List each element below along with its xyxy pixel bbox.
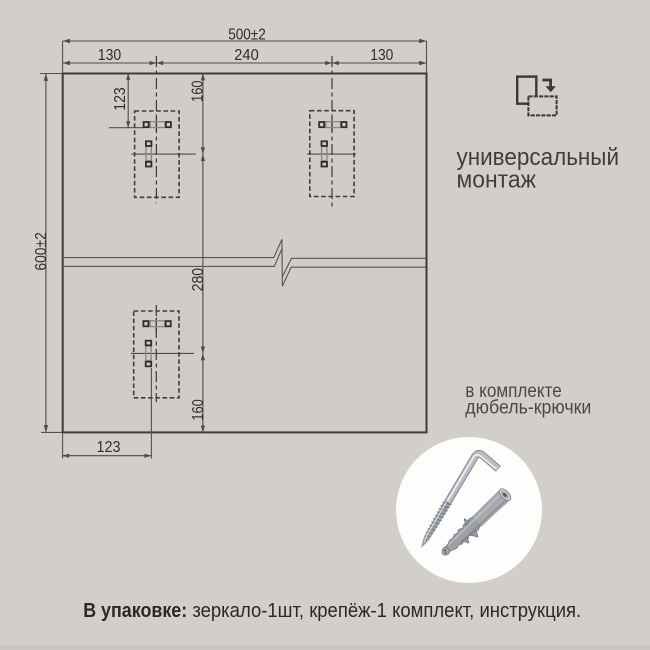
svg-text:160: 160 (190, 399, 207, 421)
svg-text:монтаж: монтаж (457, 167, 537, 194)
svg-text:123: 123 (97, 439, 121, 456)
svg-text:500±2: 500±2 (228, 26, 266, 43)
svg-text:130: 130 (98, 47, 122, 64)
svg-text:дюбель-крючки: дюбель-крючки (465, 397, 591, 418)
svg-text:В упаковке: зеркало-1шт, крепё: В упаковке: зеркало-1шт, крепёж-1 компле… (83, 600, 581, 622)
svg-text:280: 280 (190, 268, 207, 292)
svg-text:240: 240 (234, 47, 259, 64)
svg-text:160: 160 (189, 80, 206, 102)
svg-text:130: 130 (370, 47, 393, 64)
svg-text:123: 123 (112, 87, 129, 111)
svg-text:600±2: 600±2 (33, 232, 50, 271)
